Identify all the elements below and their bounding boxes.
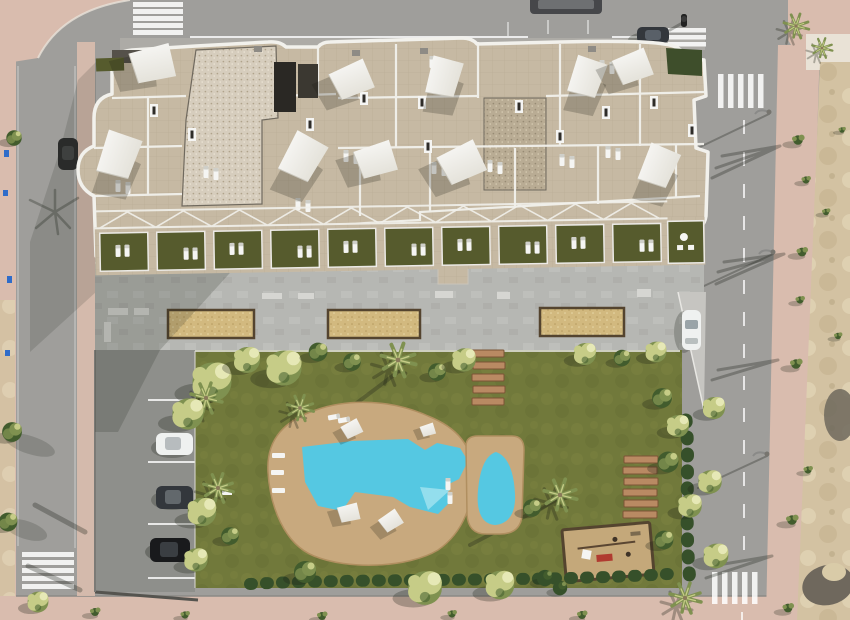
petanque-courts bbox=[168, 308, 624, 338]
terrace-chair bbox=[688, 245, 694, 250]
crosswalk-top-right bbox=[668, 28, 706, 47]
bench bbox=[637, 289, 651, 297]
plank bbox=[473, 362, 505, 369]
crosswalk-top-left bbox=[133, 2, 183, 35]
sand-court bbox=[328, 310, 420, 338]
play-equipment-red bbox=[596, 554, 613, 562]
terrace bbox=[499, 225, 548, 264]
terrace bbox=[442, 226, 491, 265]
zebra-stripe bbox=[22, 552, 74, 557]
terrace bbox=[556, 224, 605, 263]
left-sandy-verge bbox=[0, 300, 15, 596]
end-terrace bbox=[668, 221, 705, 264]
zebra-stripe bbox=[718, 74, 724, 108]
white-parked-car bbox=[151, 433, 193, 458]
zebra-stripe bbox=[133, 2, 183, 7]
zebra-stripe bbox=[758, 74, 764, 108]
zebra-stripe bbox=[133, 23, 183, 28]
rubble-highlight bbox=[822, 563, 846, 581]
plank bbox=[624, 500, 658, 507]
zebra-stripe bbox=[752, 572, 758, 604]
stairwell-box bbox=[298, 64, 318, 98]
sand-court bbox=[540, 308, 624, 336]
zebra-stripe bbox=[742, 572, 748, 604]
aerial-render bbox=[0, 0, 850, 620]
plank bbox=[473, 386, 505, 393]
zebra-stripe bbox=[748, 74, 754, 108]
sun-lounger bbox=[448, 492, 453, 504]
bench bbox=[298, 293, 314, 299]
bench bbox=[262, 293, 282, 299]
plank bbox=[624, 456, 658, 463]
van bbox=[530, 0, 602, 14]
zebra-stripe bbox=[133, 9, 183, 14]
zebra-stripe bbox=[133, 16, 183, 21]
blue-street-object bbox=[3, 190, 8, 196]
terrace bbox=[328, 228, 377, 267]
blue-street-object bbox=[4, 150, 9, 157]
terrace bbox=[214, 230, 263, 269]
blue-street-object bbox=[5, 350, 10, 356]
black-parked-car bbox=[145, 538, 191, 562]
terrace-chair bbox=[677, 245, 683, 250]
sun-lounger bbox=[272, 453, 285, 458]
zebra-stripe bbox=[738, 74, 744, 108]
scene-svg bbox=[0, 0, 850, 620]
plank bbox=[623, 489, 657, 496]
bench bbox=[497, 292, 510, 299]
play-equipment-white bbox=[581, 549, 591, 559]
plank bbox=[472, 350, 504, 357]
terrace bbox=[613, 223, 662, 262]
zebra-stripe bbox=[728, 74, 734, 108]
plank bbox=[623, 511, 657, 518]
gray-parked-car bbox=[151, 486, 193, 510]
bench bbox=[435, 291, 453, 298]
plank bbox=[472, 398, 504, 405]
terrace bbox=[157, 231, 206, 270]
terrace bbox=[385, 227, 434, 266]
zebra-stripe bbox=[133, 30, 183, 35]
garden bbox=[158, 342, 728, 620]
white-car-on-ramp bbox=[674, 310, 701, 353]
zebra-stripe bbox=[668, 35, 706, 40]
sun-lounger bbox=[446, 478, 451, 490]
plank bbox=[472, 374, 504, 381]
stairwell-box bbox=[274, 62, 296, 112]
plank bbox=[624, 478, 658, 485]
blue-street-object bbox=[7, 276, 12, 283]
sun-lounger bbox=[272, 488, 285, 493]
corner-garden-patch bbox=[666, 48, 702, 76]
zebra-stripe bbox=[732, 572, 738, 604]
terrace bbox=[100, 232, 149, 271]
terrace bbox=[271, 229, 320, 268]
zebra-stripe bbox=[722, 572, 728, 604]
parked-car-shadowed bbox=[58, 138, 78, 170]
sun-lounger bbox=[271, 470, 284, 475]
